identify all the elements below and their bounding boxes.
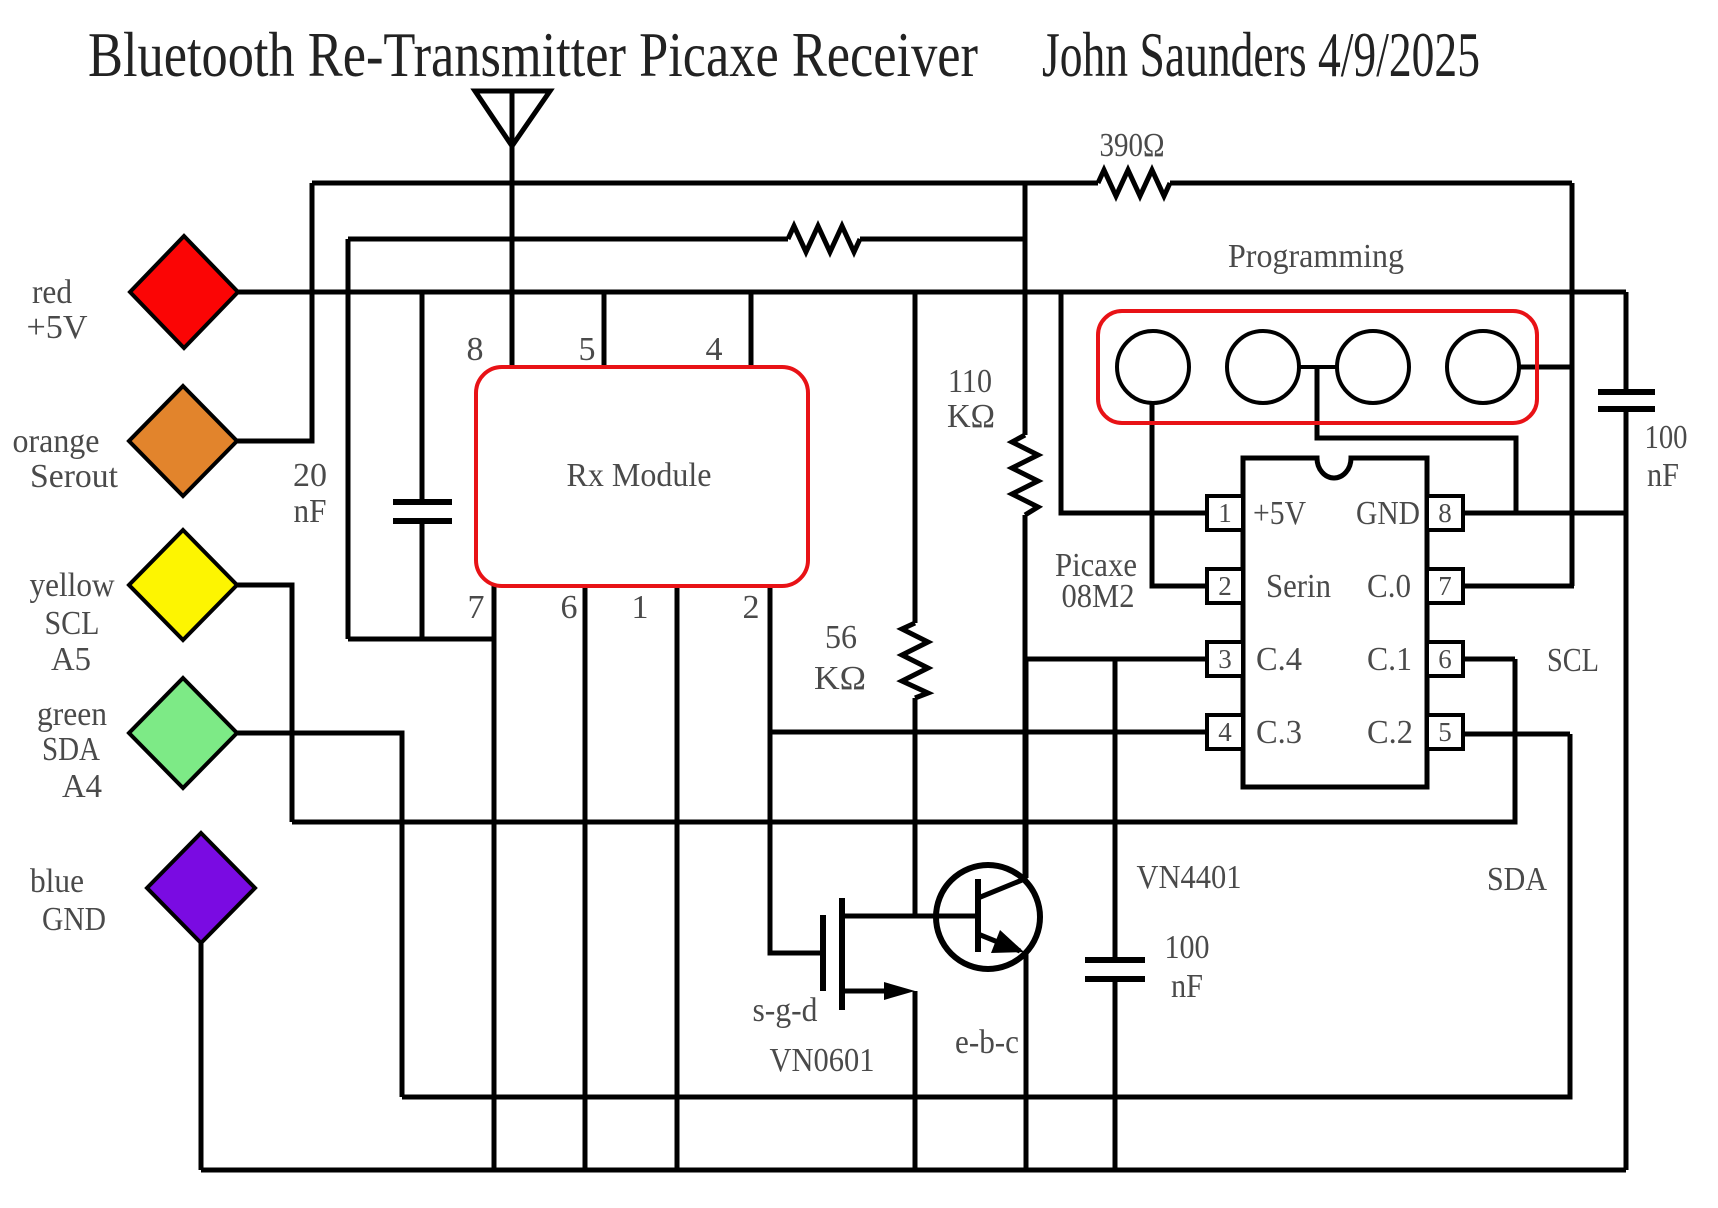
svg-text:GND: GND [1356, 495, 1420, 532]
svg-text:5: 5 [1438, 717, 1452, 747]
svg-text:VN4401: VN4401 [1137, 859, 1242, 896]
svg-text:green: green [37, 696, 107, 733]
svg-text:orange: orange [13, 423, 100, 460]
svg-text:8: 8 [1438, 498, 1452, 528]
svg-text:KΩ: KΩ [814, 660, 866, 697]
svg-text:Rx Module: Rx Module [567, 457, 712, 494]
svg-text:C.4: C.4 [1256, 641, 1302, 678]
svg-text:nF: nF [1647, 457, 1679, 494]
svg-text:8: 8 [467, 331, 484, 368]
svg-text:Bluetooth Re-Transmitter Picax: Bluetooth Re-Transmitter Picaxe Receiver [88, 19, 978, 90]
svg-text:7: 7 [1438, 571, 1452, 601]
svg-text:blue: blue [30, 863, 84, 900]
svg-text:+5V: +5V [1253, 495, 1306, 532]
svg-text:C.0: C.0 [1367, 568, 1411, 605]
svg-text:nF: nF [1171, 968, 1203, 1005]
svg-text:+5V: +5V [27, 309, 88, 346]
svg-text:SDA: SDA [1487, 861, 1547, 898]
svg-text:C.1: C.1 [1367, 641, 1412, 678]
svg-text:SCL: SCL [1547, 642, 1599, 679]
svg-text:VN0601: VN0601 [770, 1042, 875, 1079]
svg-text:110: 110 [948, 363, 992, 400]
svg-text:SDA: SDA [42, 731, 100, 768]
svg-text:390Ω: 390Ω [1100, 127, 1165, 164]
svg-text:100: 100 [1165, 929, 1210, 966]
svg-text:SCL: SCL [45, 605, 100, 642]
svg-text:nF: nF [294, 493, 327, 530]
svg-text:A4: A4 [62, 768, 102, 805]
svg-text:yellow: yellow [30, 567, 115, 604]
svg-text:3: 3 [1218, 644, 1232, 674]
svg-text:100: 100 [1645, 419, 1688, 456]
svg-text:Programming: Programming [1228, 238, 1404, 275]
svg-text:2: 2 [1218, 571, 1232, 601]
svg-text:A5: A5 [51, 641, 91, 678]
svg-text:C.3: C.3 [1256, 714, 1302, 751]
svg-text:s-g-d: s-g-d [753, 992, 818, 1029]
svg-text:6: 6 [1438, 644, 1452, 674]
svg-text:6: 6 [561, 589, 578, 626]
svg-text:08M2: 08M2 [1062, 578, 1135, 615]
svg-text:4: 4 [1218, 717, 1232, 747]
svg-text:4: 4 [706, 331, 723, 368]
svg-text:red: red [32, 274, 72, 311]
svg-text:20: 20 [293, 457, 327, 494]
svg-text:John Saunders 4/9/2025: John Saunders 4/9/2025 [1042, 19, 1480, 90]
svg-text:7: 7 [468, 589, 485, 626]
svg-text:1: 1 [1218, 498, 1232, 528]
svg-text:2: 2 [743, 589, 760, 626]
svg-text:5: 5 [579, 331, 596, 368]
svg-text:C.2: C.2 [1367, 714, 1413, 751]
svg-text:GND: GND [42, 901, 106, 938]
svg-text:56: 56 [825, 619, 857, 656]
svg-text:KΩ: KΩ [947, 398, 995, 435]
svg-text:Serin: Serin [1266, 568, 1331, 605]
svg-text:e-b-c: e-b-c [955, 1024, 1019, 1061]
svg-text:Serout: Serout [30, 458, 119, 495]
svg-text:1: 1 [632, 589, 649, 626]
